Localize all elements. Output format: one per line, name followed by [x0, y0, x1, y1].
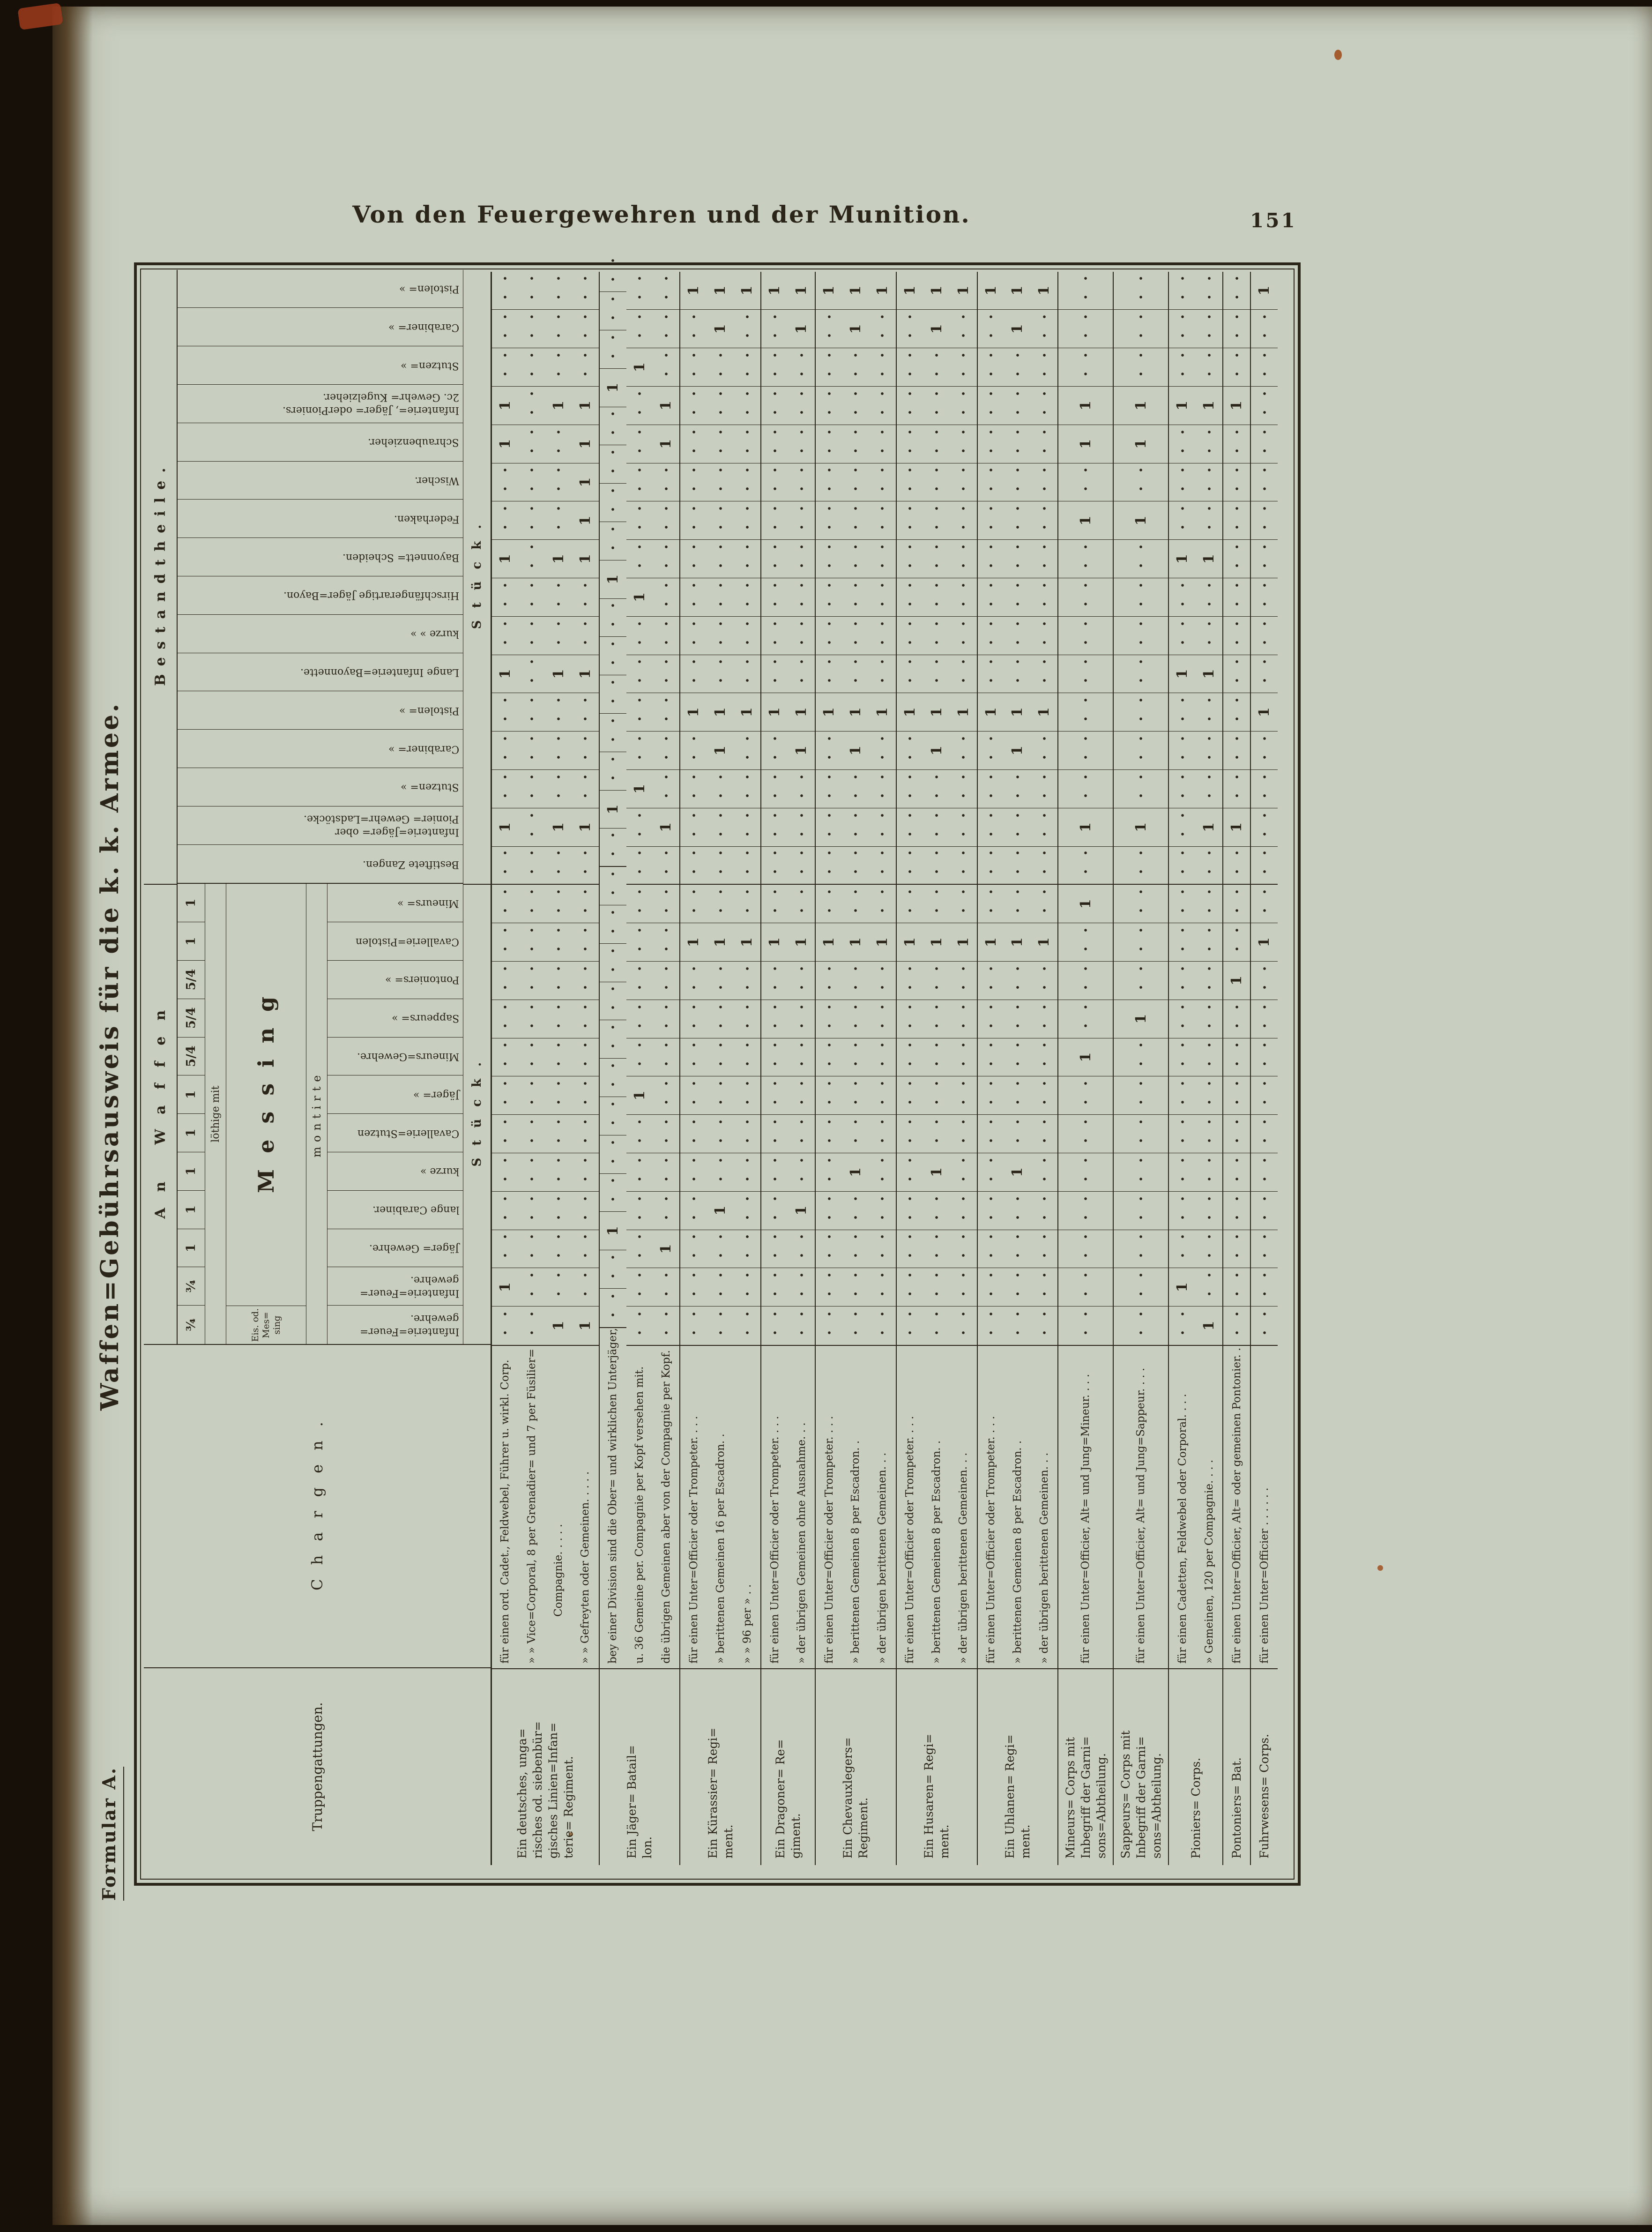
data-cell-dots — [734, 808, 760, 847]
data-cell-dots — [734, 1076, 760, 1115]
data-cell-value: 1 — [1058, 501, 1113, 540]
data-cell-dots — [600, 1174, 626, 1212]
data-cell-dots — [707, 1000, 734, 1038]
data-cell-dots — [680, 1268, 707, 1306]
data-cell-dots — [950, 501, 977, 540]
column-name-text: Jäger= Gewehre. — [369, 1242, 459, 1254]
data-cell-dots — [761, 578, 788, 617]
data-cell-dots — [950, 885, 977, 923]
waffen-column-header: Sappeurs= » — [327, 999, 463, 1038]
data-cell-dots — [1114, 923, 1168, 962]
data-cell-dots — [734, 463, 760, 502]
data-cell-dots — [761, 1115, 788, 1153]
data-cell-dots — [897, 1153, 923, 1192]
data-cell-dots — [707, 1076, 734, 1115]
data-cell-dots — [1005, 655, 1031, 694]
data-cell-dots — [1169, 617, 1196, 655]
troop-lines: bey einer Division sind die Ober= und wi… — [600, 254, 680, 1668]
column-name-text: Carabiner= » — [388, 321, 459, 333]
data-cell-dots — [1031, 1076, 1057, 1115]
data-cell-dots — [788, 1268, 815, 1306]
data-cell-dots — [707, 885, 734, 923]
data-cell-dots — [707, 770, 734, 808]
data-cell-value: 1 — [600, 369, 626, 407]
column-name-text: gewehre. — [410, 1312, 459, 1324]
data-cell-dots — [950, 578, 977, 617]
data-cell-dots — [545, 885, 572, 923]
waffen-names-row: Infanterie=Feuer=gewehre.Infanterie=Feue… — [327, 884, 463, 1344]
data-cell-dots — [707, 425, 734, 463]
data-cell-dots — [1251, 1306, 1278, 1345]
data-cell-dots — [572, 617, 599, 655]
data-cell-value: 1 — [572, 655, 599, 694]
data-cell-dots — [600, 1289, 626, 1327]
data-cell-dots — [869, 1153, 896, 1192]
data-cell-value: 1 — [545, 808, 572, 847]
data-cell-dots — [1114, 655, 1168, 694]
data-cell-dots — [680, 655, 707, 694]
data-cell-dots — [680, 962, 707, 1000]
data-cell-dots — [869, 1115, 896, 1153]
charge-data-row: Compagnie. . . . .11111 — [545, 272, 572, 1668]
data-cell-dots — [492, 693, 519, 732]
data-cell-dots — [1196, 1000, 1222, 1038]
data-cell-value: 1 — [978, 693, 1005, 732]
data-cell-dots — [788, 1306, 815, 1345]
data-cell-dots — [978, 847, 1005, 885]
data-cell-dots — [1005, 847, 1031, 885]
troop-label-line: ment. — [721, 1672, 736, 1859]
data-cell-dots — [734, 1153, 760, 1192]
data-cell-dots — [1196, 770, 1222, 808]
charge-line-text: für einen Unter=Officier oder Trompeter.… — [897, 1345, 923, 1668]
troop-label-line: Ein Jäger= Batail= — [624, 1672, 640, 1859]
data-cell-dots — [519, 1192, 545, 1230]
waffen-column-header: Infanterie=Feuer=gewehre. — [327, 1267, 463, 1306]
data-cell-dots — [1058, 1306, 1113, 1345]
data-cell-dots — [572, 1230, 599, 1269]
data-cell-dots — [492, 1038, 519, 1077]
data-cell-dots — [1005, 770, 1031, 808]
column-name-text: Pionier= Gewehr=Ladstöcke. — [304, 813, 459, 825]
data-cell-value: 1 — [1169, 387, 1196, 425]
charge-data-row: » der übrigen berittenen Gemeinen. . .11… — [869, 272, 896, 1668]
troop-group-row: Mineurs= Corps mitInbegriff der Garni=so… — [1057, 272, 1113, 1865]
data-cell-dots — [788, 348, 815, 387]
data-cell-dots — [734, 1230, 760, 1269]
data-cell-value: 1 — [492, 425, 519, 463]
data-cell-dots — [897, 847, 923, 885]
data-cell-dots — [1169, 1115, 1196, 1153]
data-cell-dots — [572, 885, 599, 923]
troop-group-row: Ein Chevauxlegers=Regiment.für einen Unt… — [815, 272, 896, 1865]
data-cell-dots — [761, 1192, 788, 1230]
data-cell-dots — [788, 425, 815, 463]
column-name-text: Cavallerie=Stutzen — [357, 1127, 459, 1139]
data-cell-dots — [950, 1268, 977, 1306]
header-group-bestandtheile: Bestandtheile. — [144, 270, 177, 884]
charge-data-row: für einen Unter=Officier, Alt= und Jung=… — [1114, 272, 1168, 1668]
data-cell-dots — [626, 885, 653, 923]
data-cell-dots — [519, 501, 545, 540]
data-cell-dots — [1005, 1076, 1031, 1115]
data-cell-dots — [734, 501, 760, 540]
data-cell-dots — [978, 1000, 1005, 1038]
data-cell-dots — [492, 348, 519, 387]
data-cell-dots — [1223, 1306, 1250, 1345]
waffen-column-header: Jäger= » — [327, 1075, 463, 1114]
data-cell-dots — [600, 752, 626, 791]
data-cell-dots — [869, 847, 896, 885]
data-cell-dots — [653, 655, 680, 694]
data-cell-dots — [572, 1000, 599, 1038]
data-cell-dots — [1058, 923, 1113, 962]
column-name-text: Carabiner= » — [388, 743, 459, 755]
data-cell-dots — [761, 885, 788, 923]
data-cell-value: 1 — [707, 923, 734, 962]
data-cell-dots — [519, 923, 545, 962]
data-cell-dots — [734, 578, 760, 617]
data-cell-dots — [572, 962, 599, 1000]
data-cell-value: 1 — [923, 693, 950, 732]
troop-label: Mineurs= Corps mitInbegriff der Garni=so… — [1058, 1668, 1113, 1865]
data-cell-dots — [788, 962, 815, 1000]
data-cell-dots — [734, 655, 760, 694]
data-cell-dots — [519, 1306, 545, 1345]
data-cell-value: 1 — [1031, 923, 1057, 962]
data-cell-dots — [734, 1192, 760, 1230]
troop-label: Fuhrwesens= Corps. — [1251, 1668, 1278, 1865]
data-cell-dots — [600, 829, 626, 867]
data-cell-dots — [816, 655, 842, 694]
charge-data-row: für einen Unter=Officier . . . . . .111 — [1251, 272, 1278, 1668]
data-cell-value: 1 — [761, 923, 788, 962]
data-cell-dots — [1223, 1230, 1250, 1269]
data-cell-dots — [869, 885, 896, 923]
data-cell-dots — [572, 732, 599, 770]
troop-label: Ein Husaren= Regi=ment. — [897, 1668, 977, 1865]
data-cell-dots — [545, 1192, 572, 1230]
data-cell-value: 1 — [734, 272, 760, 310]
data-cell-dots — [788, 1153, 815, 1192]
charge-line-text: für einen Unter=Officier oder Trompeter.… — [978, 1345, 1005, 1668]
data-cell-dots — [680, 310, 707, 348]
data-cell-dots — [1005, 501, 1031, 540]
data-cell-dots — [842, 463, 869, 502]
header-eis-line: Mes= — [261, 1312, 272, 1338]
data-cell-value: 1 — [1114, 501, 1168, 540]
data-cell-dots — [816, 808, 842, 847]
data-cell-value: 1 — [816, 272, 842, 310]
data-cell-dots — [897, 501, 923, 540]
data-cell-dots — [788, 655, 815, 694]
data-cell-dots — [1114, 578, 1168, 617]
data-cell-dots — [1196, 1268, 1222, 1306]
data-cell-dots — [653, 962, 680, 1000]
fraction-cell: ¾ — [178, 1306, 205, 1344]
data-cell-dots — [1031, 617, 1057, 655]
troop-label-line: giment. — [788, 1672, 804, 1859]
data-cell-dots — [545, 501, 572, 540]
data-cell-dots — [842, 1115, 869, 1153]
data-cell-dots — [950, 348, 977, 387]
formular-label: Formular A. — [98, 1767, 124, 1901]
data-cell-dots — [1251, 732, 1278, 770]
data-cell-dots — [897, 1230, 923, 1269]
column-name-text: Jäger= » — [413, 1089, 459, 1101]
data-cell-dots — [1251, 463, 1278, 502]
data-cell-dots — [1223, 655, 1250, 694]
data-cell-dots — [1196, 847, 1222, 885]
data-cell-dots — [600, 330, 626, 369]
data-cell-dots — [788, 387, 815, 425]
bestandtheile-column-header: Wischer. — [178, 462, 463, 500]
data-cell-dots — [1058, 1115, 1113, 1153]
data-cell-dots — [761, 655, 788, 694]
charge-line-text: » berittenen Gemeinen 8 per Escadron. . — [1005, 1345, 1031, 1668]
data-cell-value: 1 — [842, 310, 869, 348]
data-cell-dots — [1223, 923, 1250, 962]
data-cell-value: 1 — [600, 560, 626, 599]
book-gutter-shadow — [52, 7, 93, 2225]
data-cell-dots — [545, 1038, 572, 1077]
data-cell-value: 1 — [1005, 732, 1031, 770]
data-cell-dots — [1005, 348, 1031, 387]
data-cell-value: 1 — [1196, 1306, 1222, 1345]
data-cell-dots — [492, 501, 519, 540]
troop-label-line: ment. — [937, 1672, 952, 1859]
data-cell-dots — [600, 599, 626, 637]
data-cell-dots — [1114, 1306, 1168, 1345]
data-cell-dots — [1005, 1000, 1031, 1038]
troop-label-line: Ein Kürassier= Regi= — [705, 1672, 721, 1859]
data-cell-dots — [680, 463, 707, 502]
data-cell-dots — [492, 578, 519, 617]
data-cell-dots — [680, 501, 707, 540]
data-cell-dots — [1251, 425, 1278, 463]
charge-line-text: » berittenen Gemeinen 8 per Escadron. . — [923, 1345, 950, 1668]
data-cell-value: 1 — [653, 1230, 680, 1269]
data-cell-dots — [680, 732, 707, 770]
data-cell-dots — [680, 1192, 707, 1230]
data-cell-dots — [788, 501, 815, 540]
troop-label: Ein Kürassier= Regi=ment. — [680, 1668, 760, 1865]
data-cell-dots — [680, 578, 707, 617]
charge-line-text: » berittenen Gemeinen 16 per Escadron. . — [707, 1345, 734, 1668]
data-cell-value: 1 — [653, 808, 680, 847]
data-cell-dots — [572, 1192, 599, 1230]
data-cell-dots — [1114, 540, 1168, 578]
data-cell-dots — [1114, 962, 1168, 1000]
data-cell-value: 1 — [788, 1192, 815, 1230]
data-cell-dots — [626, 310, 653, 348]
data-cell-dots — [1169, 885, 1196, 923]
data-cell-dots — [1058, 693, 1113, 732]
header-group-row: An Waffen Bestandtheile. — [144, 270, 178, 1344]
data-cell-dots — [680, 1000, 707, 1038]
data-cell-dots — [978, 1115, 1005, 1153]
data-cell-dots — [653, 1306, 680, 1345]
data-cell-dots — [1058, 578, 1113, 617]
data-cell-dots — [842, 387, 869, 425]
data-cell-value: 1 — [869, 923, 896, 962]
data-cell-dots — [1169, 578, 1196, 617]
data-cell-dots — [842, 655, 869, 694]
data-cell-dots — [1169, 310, 1196, 348]
data-cell-dots — [978, 540, 1005, 578]
data-cell-dots — [816, 1192, 842, 1230]
data-cell-value: 1 — [1005, 272, 1031, 310]
data-cell-dots — [1169, 923, 1196, 962]
column-name-text: Infanterie=Feuer= — [360, 1287, 459, 1299]
column-name-text: Cavallerie=Pistolen — [356, 935, 459, 948]
charge-line-text: für einen Unter=Officier oder Trompeter.… — [816, 1345, 842, 1668]
data-cell-dots — [1251, 770, 1278, 808]
data-cell-dots — [1251, 1038, 1278, 1077]
data-cell-value: 1 — [1058, 808, 1113, 847]
charge-line-text: für einen ord. Cadet., Feldwebel, Führer… — [492, 1345, 519, 1668]
data-cell-value: 1 — [1251, 923, 1278, 962]
charge-line-text: für einen Unter=Officier, Alt= und Jung=… — [1114, 1345, 1168, 1668]
bestandtheile-column-header: Federhaken. — [178, 500, 463, 538]
data-cell-dots — [1169, 425, 1196, 463]
data-cell-dots — [1058, 1230, 1113, 1269]
data-cell-dots — [1031, 962, 1057, 1000]
data-cell-dots — [626, 1230, 653, 1269]
data-cell-dots — [545, 923, 572, 962]
data-cell-dots — [869, 425, 896, 463]
data-cell-dots — [545, 1115, 572, 1153]
data-cell-value: 1 — [1114, 387, 1168, 425]
data-cell-dots — [950, 463, 977, 502]
data-cell-dots — [626, 387, 653, 425]
troop-label-line: Mineurs= Corps mit — [1063, 1672, 1078, 1859]
data-cell-dots — [1031, 732, 1057, 770]
data-cell-dots — [1005, 387, 1031, 425]
data-cell-dots — [978, 1230, 1005, 1269]
data-cell-dots — [842, 770, 869, 808]
data-cell-dots — [600, 944, 626, 982]
data-cell-dots — [1196, 1115, 1222, 1153]
charge-data-row: » der übrigen berittenen Gemeinen. . .11… — [950, 272, 977, 1668]
charge-line-text: die übrigen Gemeinen aber von der Compag… — [653, 1345, 680, 1668]
header-sub-row: ¾¾111115/45/45/411 löthige mit Eis. od.M… — [178, 270, 463, 1344]
charge-data-row: » » Vice=Corporal, 8 per Grenadier= und … — [519, 272, 545, 1668]
data-cell-dots — [653, 348, 680, 387]
data-cell-dots — [816, 1038, 842, 1077]
data-cell-dots — [978, 501, 1005, 540]
data-cell-dots — [653, 1000, 680, 1038]
troop-label-line: Ein Uhlanen= Regi= — [1002, 1672, 1018, 1859]
paper-page: Von den Feuergewehren und der Munition. … — [52, 7, 1652, 2225]
data-cell-dots — [897, 732, 923, 770]
data-cell-dots — [950, 1076, 977, 1115]
data-cell-dots — [1058, 1192, 1113, 1230]
troop-label-line: Fuhrwesens= Corps. — [1257, 1672, 1272, 1859]
data-cell-dots — [1031, 348, 1057, 387]
troop-lines: für einen Unter=Officier oder Trompeter.… — [680, 272, 760, 1668]
waffen-column-header: Jäger= Gewehre. — [327, 1229, 463, 1268]
data-cell-dots — [600, 867, 626, 905]
data-cell-dots — [545, 348, 572, 387]
troop-lines: für einen Unter=Officier, Alt= und Jung=… — [1058, 272, 1113, 1668]
data-cell-dots — [600, 292, 626, 330]
waffen-column-header: kurze » — [327, 1152, 463, 1191]
data-cell-dots — [680, 770, 707, 808]
data-cell-dots — [761, 1076, 788, 1115]
data-cell-dots — [923, 578, 950, 617]
data-cell-dots — [1251, 348, 1278, 387]
data-cell-dots — [978, 962, 1005, 1000]
troop-lines: für einen Cadetten, Feldwebel oder Corpo… — [1169, 272, 1222, 1668]
bestandtheile-column-header: Stutzen= » — [178, 768, 463, 806]
data-cell-dots — [1169, 1076, 1196, 1115]
charge-data-row: für einen Unter=Officier oder Trompeter.… — [680, 272, 707, 1668]
data-cell-dots — [1169, 1038, 1196, 1077]
data-cell-dots — [897, 425, 923, 463]
data-cell-dots — [600, 407, 626, 446]
data-cell-dots — [653, 732, 680, 770]
data-cell-dots — [897, 310, 923, 348]
data-cell-dots — [950, 808, 977, 847]
charge-data-row: » » Gefreyten oder Gemeinen. . . . .1111… — [572, 272, 599, 1668]
data-cell-dots — [923, 463, 950, 502]
data-cell-dots — [761, 387, 788, 425]
data-cell-value: 1 — [707, 1192, 734, 1230]
data-cell-dots — [869, 1230, 896, 1269]
data-cell-dots — [600, 446, 626, 484]
troop-label-line: ment. — [1018, 1672, 1033, 1859]
data-cell-dots — [1251, 501, 1278, 540]
data-cell-dots — [1251, 1268, 1278, 1306]
troop-group-row: Ein Dragoner= Re=giment.für einen Unter=… — [760, 272, 815, 1865]
data-cell-dots — [734, 732, 760, 770]
data-cell-value: 1 — [1169, 1268, 1196, 1306]
column-name-text: gewehre. — [410, 1274, 459, 1286]
charge-line-text: Compagnie. . . . . — [545, 1345, 572, 1668]
data-cell-dots — [1031, 655, 1057, 694]
charge-data-row: bey einer Division sind die Ober= und wi… — [600, 254, 626, 1668]
fraction-cell: 1 — [178, 922, 205, 961]
data-cell-dots — [519, 1230, 545, 1269]
data-cell-dots — [680, 348, 707, 387]
data-cell-dots — [950, 387, 977, 425]
data-cell-dots — [816, 732, 842, 770]
troop-label-line: Sappeurs= Corps mit — [1118, 1672, 1133, 1859]
data-cell-dots — [1031, 540, 1057, 578]
data-cell-dots — [1223, 1038, 1250, 1077]
data-cell-dots — [816, 1076, 842, 1115]
data-cell-dots — [680, 1153, 707, 1192]
data-cell-dots — [653, 1153, 680, 1192]
data-cell-value: 1 — [572, 501, 599, 540]
data-cell-dots — [653, 310, 680, 348]
data-cell-dots — [626, 501, 653, 540]
data-cell-dots — [707, 501, 734, 540]
data-cell-dots — [869, 540, 896, 578]
data-cell-value: 1 — [600, 791, 626, 829]
charge-data-row: » berittenen Gemeinen 8 per Escadron. .1… — [1005, 272, 1031, 1668]
data-cell-value: 1 — [816, 923, 842, 962]
data-cell-dots — [707, 1268, 734, 1306]
charge-data-row: u. 36 Gemeine per. Compagnie per Kopf ve… — [626, 254, 653, 1668]
column-name-text: Pistolen= » — [399, 283, 459, 295]
data-cell-dots — [572, 1038, 599, 1077]
data-cell-dots — [572, 693, 599, 732]
data-cell-dots — [869, 1268, 896, 1306]
data-cell-value: 1 — [572, 425, 599, 463]
data-cell-dots — [1114, 1230, 1168, 1269]
